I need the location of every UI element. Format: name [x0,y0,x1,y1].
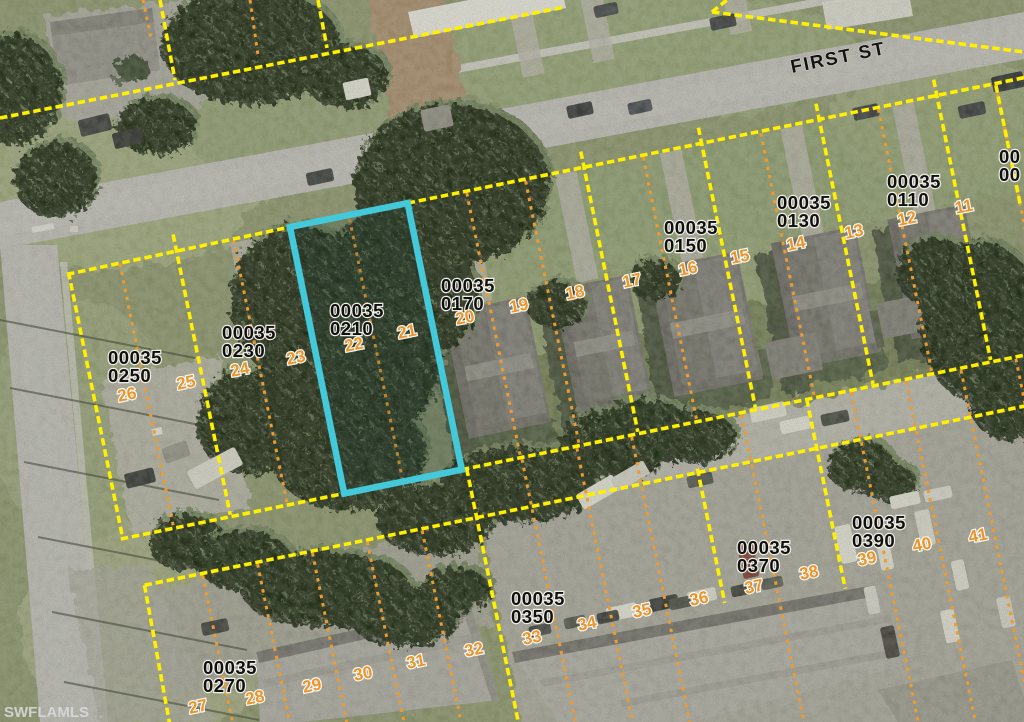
svg-text:18: 18 [564,281,586,303]
svg-text:30: 30 [352,662,374,684]
svg-text:38: 38 [798,561,820,583]
svg-text:0150: 0150 [664,235,707,256]
svg-text:37: 37 [743,575,765,597]
svg-text:11: 11 [953,196,974,218]
svg-text:12: 12 [896,207,918,229]
svg-text:15: 15 [729,245,751,267]
svg-text:13: 13 [843,220,865,242]
svg-text:21: 21 [396,320,418,342]
svg-text:35: 35 [631,599,653,621]
svg-text:32: 32 [463,638,485,660]
svg-text:0230: 0230 [222,340,265,361]
svg-text:0270: 0270 [203,675,246,696]
svg-text:39: 39 [856,547,878,569]
svg-text:23: 23 [285,346,307,368]
svg-text:00: 00 [999,164,1021,185]
svg-text:27: 27 [187,695,209,717]
svg-text:0110: 0110 [887,189,929,210]
svg-text:29: 29 [301,674,323,696]
svg-text:16: 16 [677,257,699,279]
svg-text:0250: 0250 [108,365,151,386]
svg-text:0370: 0370 [737,555,780,576]
svg-text:41: 41 [967,524,989,546]
svg-text:22: 22 [343,333,365,355]
svg-text:28: 28 [244,686,266,708]
svg-text:0130: 0130 [777,210,820,231]
svg-text:25: 25 [175,371,197,393]
svg-text:17: 17 [621,269,643,291]
svg-text:36: 36 [688,587,710,609]
svg-text:0350: 0350 [511,606,554,627]
svg-text:SWFLAMLS: SWFLAMLS [4,704,89,721]
svg-text:19: 19 [508,294,530,316]
svg-text:33: 33 [521,626,543,648]
svg-text:31: 31 [405,650,427,672]
svg-text:40: 40 [911,533,933,555]
svg-text:20: 20 [454,306,476,328]
svg-text:26: 26 [116,383,138,405]
